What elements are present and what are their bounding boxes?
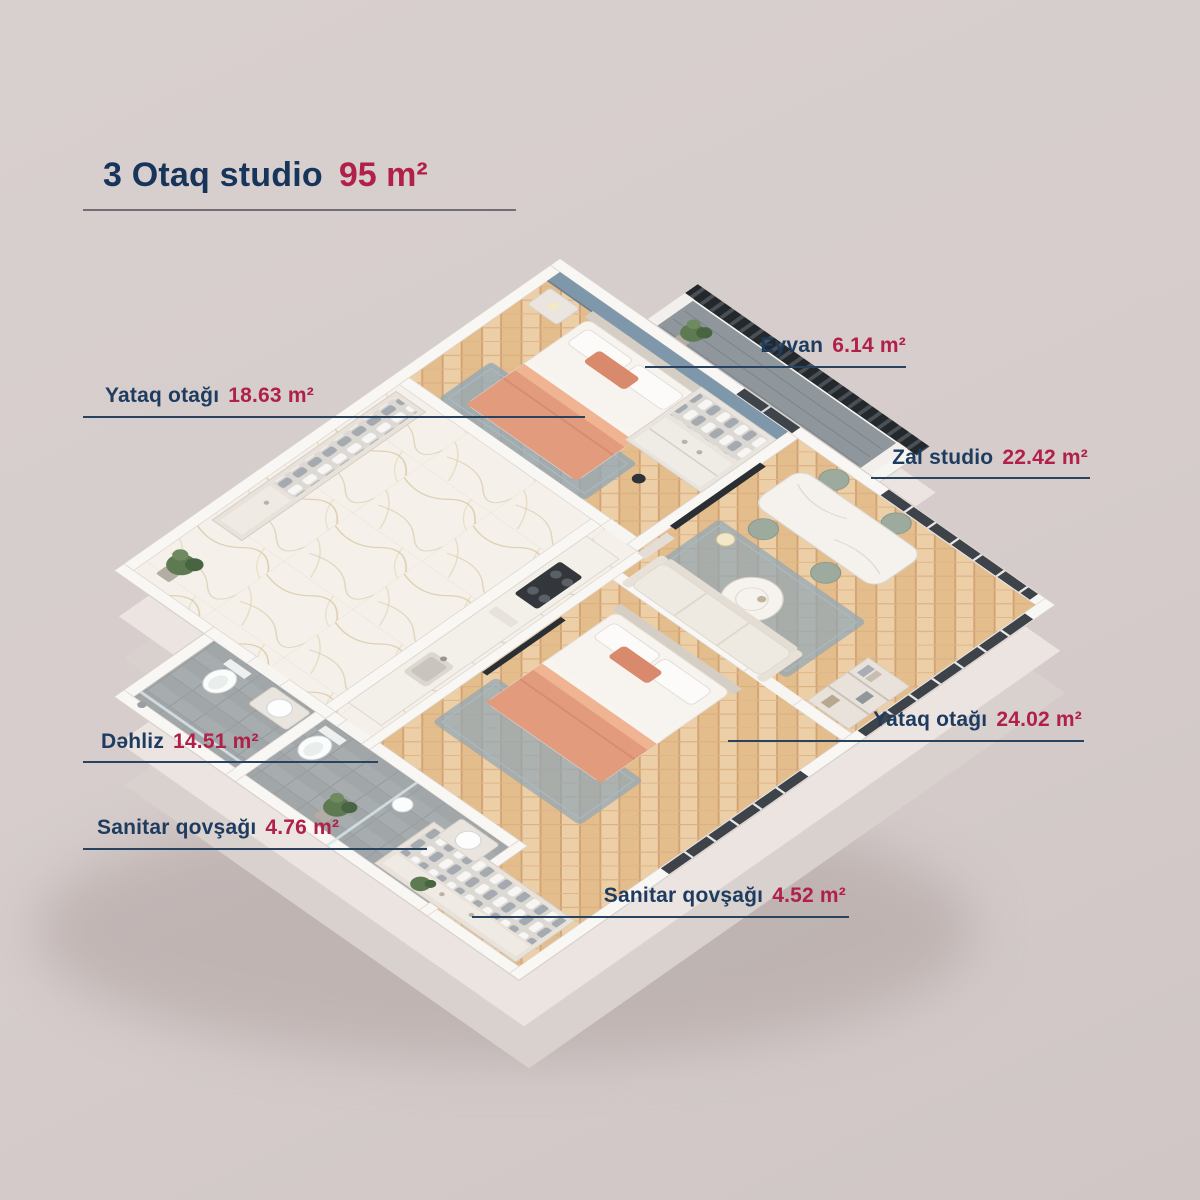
title-underline <box>83 209 516 211</box>
leader-line-yataq-2 <box>728 740 1084 742</box>
room-label-dehliz: Dəhliz14.51 m² <box>101 730 259 754</box>
leader-line-zal <box>871 477 1090 479</box>
room-label-yataq-1: Yataq otağı18.63 m² <box>105 384 314 408</box>
floor-plan-page: 3 Otaq studio95 m² Eyvan6.14 m² Yataq ot… <box>0 0 1200 1200</box>
leader-line-dehliz <box>83 761 378 763</box>
plan-title-text: 3 Otaq studio <box>103 156 323 194</box>
plan-title-area: 95 m² <box>339 156 428 194</box>
room-label-eyvan: Eyvan6.14 m² <box>760 334 906 358</box>
room-label-sanitar-1: Sanitar qovşağı4.76 m² <box>97 816 339 840</box>
leader-line-yataq-1 <box>83 416 585 418</box>
room-label-sanitar-2: Sanitar qovşağı4.52 m² <box>604 884 846 908</box>
leader-line-eyvan <box>645 366 906 368</box>
leader-line-sanitar-2 <box>472 916 849 918</box>
room-label-yataq-2: Yataq otağı24.02 m² <box>873 708 1082 732</box>
page-title: 3 Otaq studio95 m² <box>103 156 428 195</box>
leader-line-sanitar-1 <box>83 848 427 850</box>
room-label-zal: Zal studio22.42 m² <box>892 446 1088 470</box>
